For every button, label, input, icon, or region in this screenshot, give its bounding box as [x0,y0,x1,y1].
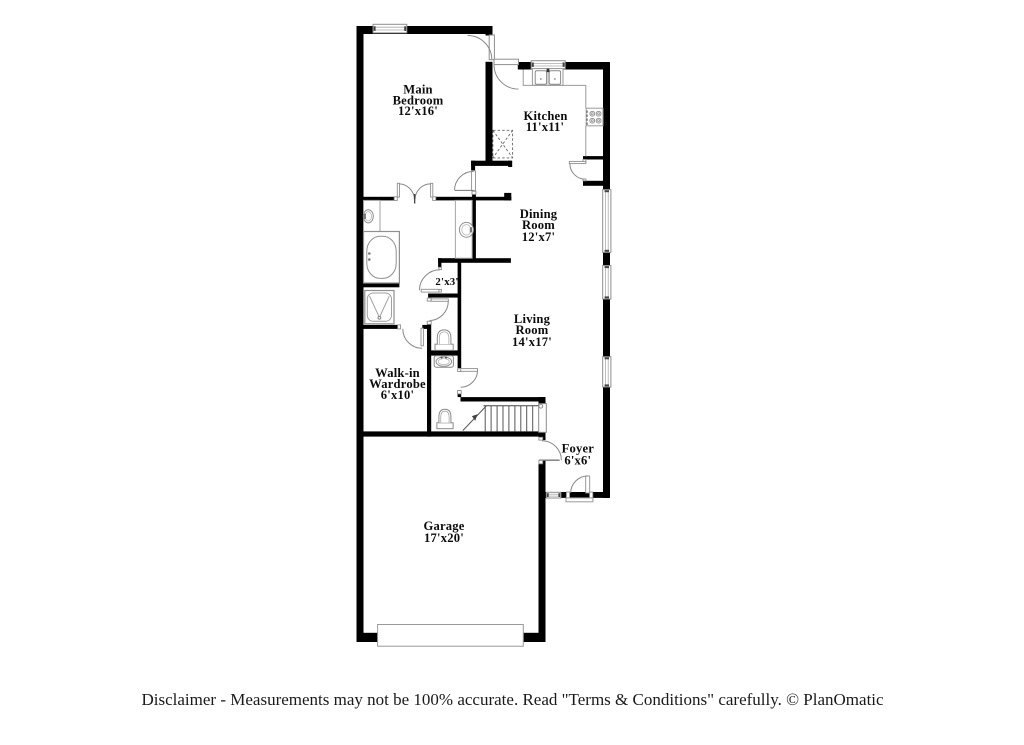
svg-text:17'x20': 17'x20' [424,531,464,545]
svg-text:12'x7': 12'x7' [522,230,555,244]
svg-text:Disclaimer - Measurements may: Disclaimer - Measurements may not be 100… [142,690,885,709]
svg-text:6'x10': 6'x10' [381,388,414,402]
svg-text:6'x6': 6'x6' [564,454,591,468]
svg-text:14'x17': 14'x17' [512,335,552,349]
svg-text:12'x16': 12'x16' [398,104,438,118]
svg-text:2'x3': 2'x3' [435,276,458,288]
svg-text:11'x11': 11'x11' [526,120,565,134]
